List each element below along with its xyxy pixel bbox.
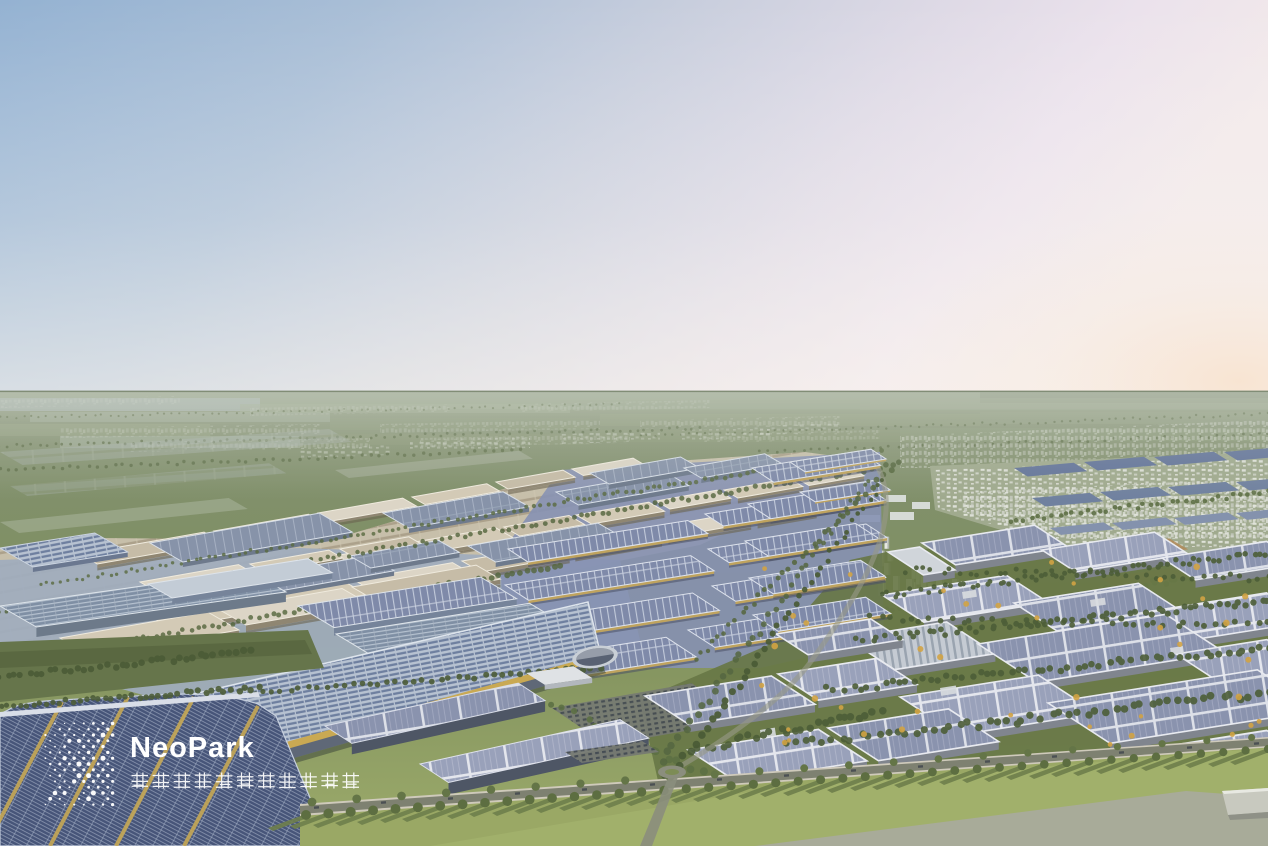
svg-text:NeoPark: NeoPark [130, 732, 255, 764]
